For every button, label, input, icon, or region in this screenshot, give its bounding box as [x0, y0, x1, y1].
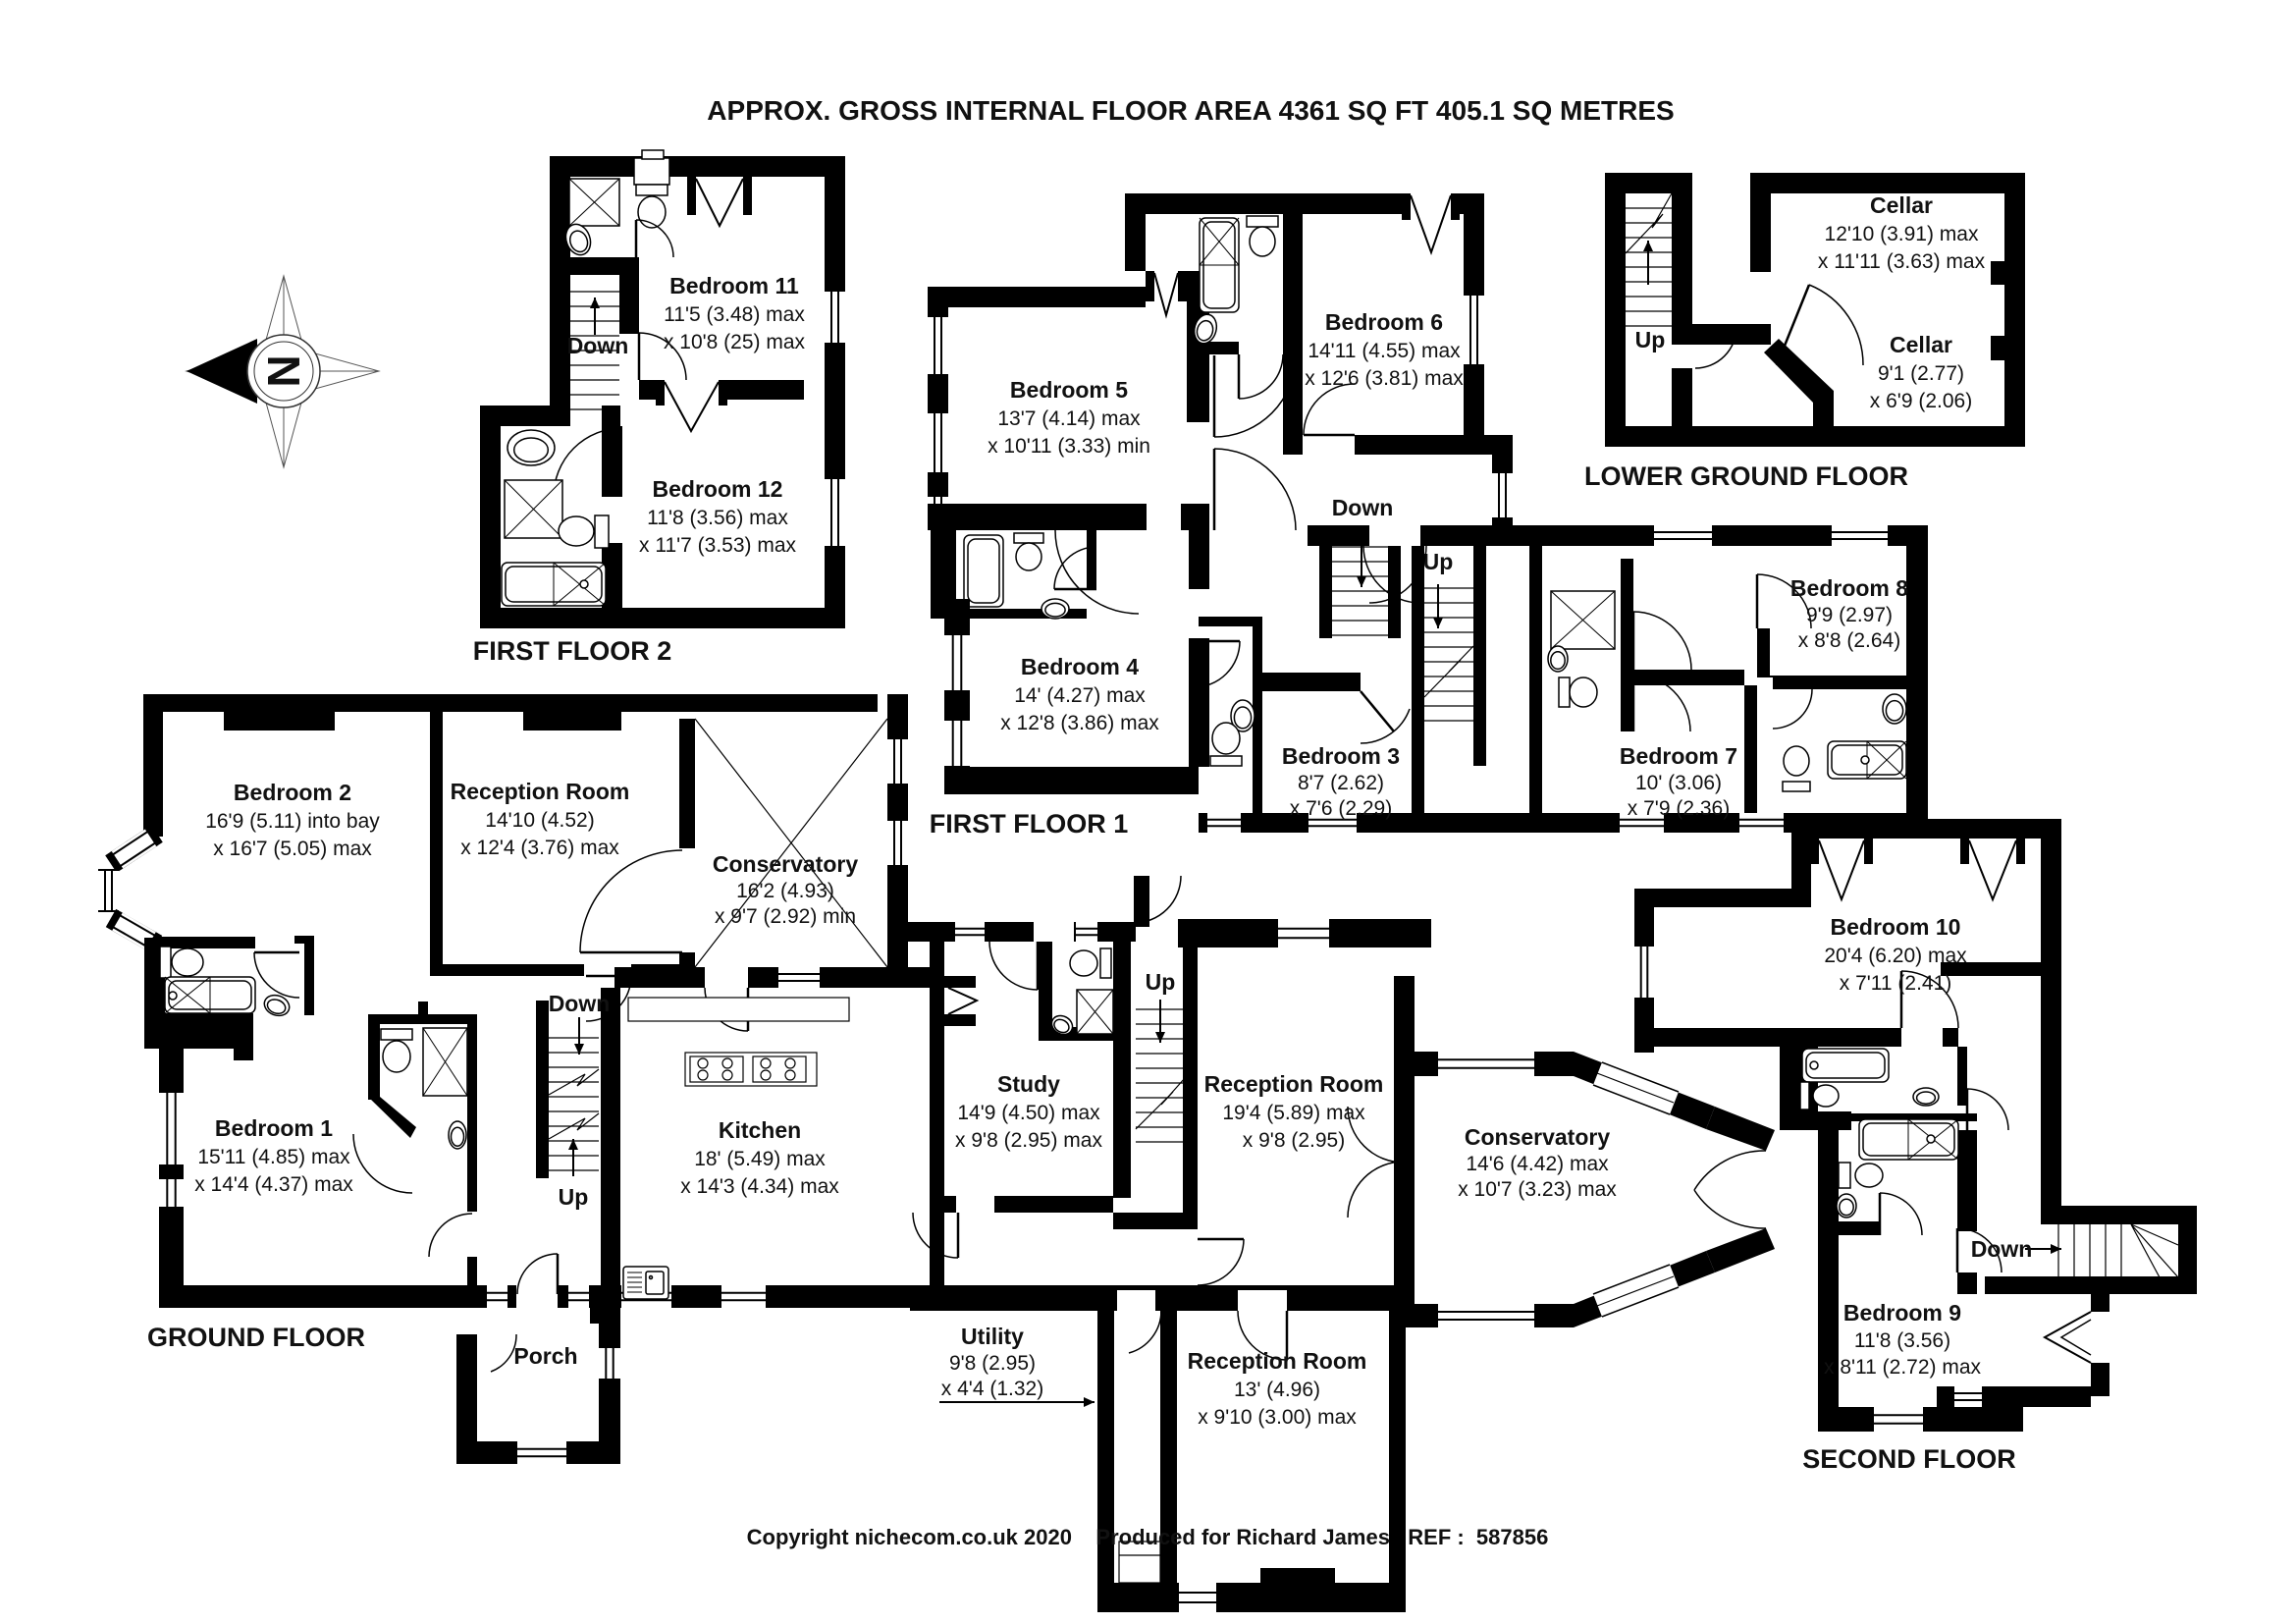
svg-text:Bedroom 7: Bedroom 7 [1620, 743, 1737, 769]
svg-text:LOWER GROUND FLOOR: LOWER GROUND FLOOR [1584, 461, 1908, 491]
svg-text:FIRST FLOOR 2: FIRST FLOOR 2 [473, 636, 672, 666]
svg-text:Conservatory: Conservatory [713, 851, 858, 877]
svg-text:x 8'8 (2.64): x 8'8 (2.64) [1798, 629, 1900, 652]
svg-text:x 12'8 (3.86) max: x 12'8 (3.86) max [1000, 712, 1159, 734]
svg-text:x 14'3 (4.34) max: x 14'3 (4.34) max [680, 1175, 839, 1198]
svg-text:x 9'8 (2.95) max: x 9'8 (2.95) max [955, 1129, 1102, 1152]
svg-text:Copyright nichecom.co.uk 2020: Copyright nichecom.co.uk 2020 Produced f… [747, 1525, 1549, 1549]
svg-text:Porch: Porch [513, 1343, 577, 1369]
svg-text:x 16'7 (5.05) max: x 16'7 (5.05) max [213, 838, 372, 860]
svg-text:x 7'11 (2.41): x 7'11 (2.41) [1840, 972, 1952, 995]
svg-text:x 9'10 (3.00) max: x 9'10 (3.00) max [1198, 1406, 1357, 1429]
svg-text:9'8 (2.95): 9'8 (2.95) [949, 1352, 1036, 1375]
svg-text:Down: Down [1332, 495, 1394, 520]
svg-text:x 7'9 (2.36): x 7'9 (2.36) [1628, 797, 1730, 820]
svg-text:x 11'11 (3.63) max: x 11'11 (3.63) max [1818, 250, 1986, 273]
svg-text:Bedroom 3: Bedroom 3 [1282, 743, 1400, 769]
svg-text:18' (5.49) max: 18' (5.49) max [694, 1148, 826, 1170]
svg-text:Down: Down [549, 991, 611, 1016]
svg-text:14'9 (4.50) max: 14'9 (4.50) max [957, 1102, 1100, 1124]
svg-text:Down: Down [567, 333, 629, 358]
svg-text:Bedroom 12: Bedroom 12 [653, 476, 783, 502]
svg-text:Bedroom 2: Bedroom 2 [234, 780, 351, 805]
svg-text:Cellar: Cellar [1870, 192, 1933, 218]
svg-text:Study: Study [997, 1071, 1060, 1097]
svg-text:Bedroom 4: Bedroom 4 [1021, 654, 1139, 679]
svg-text:x 12'6 (3.81) max: x 12'6 (3.81) max [1305, 367, 1464, 390]
svg-text:11'5 (3.48) max: 11'5 (3.48) max [664, 303, 805, 326]
svg-text:14'6 (4.42) max: 14'6 (4.42) max [1466, 1153, 1609, 1175]
svg-text:20'4 (6.20) max: 20'4 (6.20) max [1824, 945, 1967, 967]
svg-text:16'2 (4.93): 16'2 (4.93) [736, 880, 834, 902]
svg-text:GROUND FLOOR: GROUND FLOOR [147, 1323, 365, 1352]
svg-text:14' (4.27) max: 14' (4.27) max [1014, 684, 1146, 707]
svg-text:13'7 (4.14) max: 13'7 (4.14) max [997, 407, 1141, 430]
svg-text:x 10'8 (25) max: x 10'8 (25) max [664, 331, 806, 353]
svg-text:x 9'8 (2.95): x 9'8 (2.95) [1243, 1129, 1345, 1152]
svg-text:Up: Up [559, 1184, 589, 1210]
svg-text:x 4'4 (1.32): x 4'4 (1.32) [941, 1378, 1043, 1400]
svg-text:FIRST FLOOR 1: FIRST FLOOR 1 [930, 809, 1129, 839]
svg-text:SECOND FLOOR: SECOND FLOOR [1802, 1444, 2016, 1474]
svg-text:x 12'4 (3.76) max: x 12'4 (3.76) max [460, 837, 619, 859]
svg-text:N: N [258, 354, 309, 387]
svg-text:Bedroom 11: Bedroom 11 [669, 273, 799, 298]
svg-text:Bedroom 10: Bedroom 10 [1831, 914, 1961, 940]
svg-text:Bedroom 6: Bedroom 6 [1325, 309, 1443, 335]
svg-text:9'9 (2.97): 9'9 (2.97) [1806, 604, 1893, 626]
svg-text:Reception Room: Reception Room [451, 779, 630, 804]
svg-text:Conservatory: Conservatory [1465, 1124, 1610, 1150]
svg-text:Utility: Utility [961, 1324, 1024, 1349]
svg-text:Kitchen: Kitchen [719, 1117, 801, 1143]
svg-text:Bedroom 1: Bedroom 1 [215, 1115, 333, 1141]
svg-text:APPROX. GROSS INTERNAL FLOOR A: APPROX. GROSS INTERNAL FLOOR AREA 4361 S… [707, 95, 1674, 126]
svg-text:Up: Up [1635, 327, 1666, 352]
svg-text:19'4 (5.89) max: 19'4 (5.89) max [1222, 1102, 1365, 1124]
svg-text:x 6'9 (2.06): x 6'9 (2.06) [1870, 390, 1972, 412]
svg-text:Bedroom 8: Bedroom 8 [1790, 575, 1908, 601]
svg-text:x 14'4 (4.37) max: x 14'4 (4.37) max [194, 1173, 353, 1196]
svg-text:14'10 (4.52): 14'10 (4.52) [485, 809, 594, 832]
svg-text:x 10'11 (3.33) min: x 10'11 (3.33) min [988, 435, 1150, 458]
svg-text:11'8 (3.56): 11'8 (3.56) [1854, 1329, 1950, 1352]
svg-text:Reception Room: Reception Room [1204, 1071, 1384, 1097]
svg-text:9'1 (2.77): 9'1 (2.77) [1878, 362, 1964, 385]
svg-text:x 8'11 (2.72) max: x 8'11 (2.72) max [1824, 1356, 1982, 1379]
svg-text:12'10 (3.91) max: 12'10 (3.91) max [1825, 223, 1979, 245]
svg-text:Cellar: Cellar [1890, 332, 1952, 357]
svg-text:10' (3.06): 10' (3.06) [1635, 772, 1722, 794]
svg-text:16'9 (5.11) into bay: 16'9 (5.11) into bay [205, 810, 380, 833]
svg-text:Up: Up [1146, 969, 1176, 995]
svg-text:x 10'7 (3.23) max: x 10'7 (3.23) max [1458, 1178, 1617, 1201]
svg-text:14'11 (4.55) max: 14'11 (4.55) max [1308, 340, 1461, 362]
svg-text:8'7 (2.62): 8'7 (2.62) [1298, 772, 1384, 794]
svg-text:13' (4.96): 13' (4.96) [1234, 1379, 1320, 1401]
svg-text:Up: Up [1423, 549, 1454, 574]
svg-text:Reception Room: Reception Room [1188, 1348, 1367, 1374]
svg-text:11'8 (3.56) max: 11'8 (3.56) max [647, 507, 788, 529]
svg-text:Bedroom 9: Bedroom 9 [1843, 1300, 1961, 1326]
svg-text:x 9'7 (2.92) min: x 9'7 (2.92) min [715, 905, 856, 928]
svg-text:x 11'7 (3.53) max: x 11'7 (3.53) max [639, 534, 797, 557]
svg-text:Down: Down [1971, 1236, 2033, 1262]
svg-text:15'11 (4.85) max: 15'11 (4.85) max [197, 1146, 350, 1168]
svg-text:Bedroom 5: Bedroom 5 [1010, 377, 1128, 403]
svg-text:x 7'6 (2.29): x 7'6 (2.29) [1290, 797, 1392, 820]
